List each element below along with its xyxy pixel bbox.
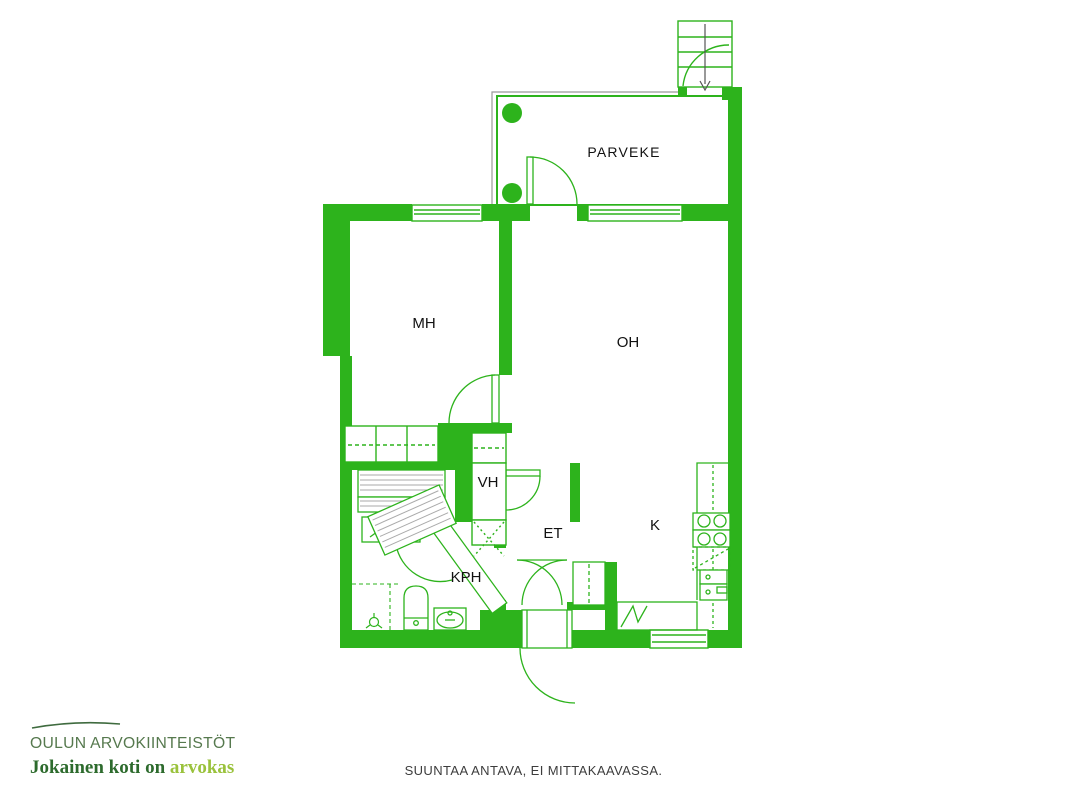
balcony-post [502,103,522,123]
kitchen-window [650,630,708,648]
logo-curve [30,719,230,729]
room-label-kph: KPH [451,569,482,586]
floor-drain-icon [366,613,382,628]
shower-area [352,584,398,630]
room-label-oh: OH [617,334,640,351]
stairs-icon [678,21,732,90]
oh-window [588,205,682,221]
stove-icon [693,513,730,547]
room-label-parveke: PARVEKE [587,144,660,160]
entrance-door [520,610,575,703]
floor-plan-drawing: PARVEKE MH OH VH ET K KPH [0,0,1067,800]
room-label-et: ET [543,525,562,542]
balcony-post [502,183,522,203]
balcony-door [527,157,577,204]
toilet-icon [404,586,428,630]
closets [472,433,506,556]
appliance-zigzag-icon [621,606,647,627]
kitchen-fixtures [617,463,730,630]
wardrobe [345,426,438,462]
room-label-vh: VH [478,474,499,491]
fridge-icon [700,570,727,600]
entrance-inner-door [517,560,567,605]
scale-disclaimer: SUUNTAA ANTAVA, EI MITTAKAAVASSA. [0,763,1067,778]
room-label-k: K [650,517,660,534]
vh-door [506,470,540,510]
sink-icon [434,608,466,630]
mh-window [412,205,482,221]
floor-plan-page: PARVEKE MH OH VH ET K KPH OULUN ARVOKIIN… [0,0,1067,800]
dishwasher-reservation-icon [693,547,730,570]
room-label-mh: MH [412,315,435,332]
company-name: OULUN ARVOKIINTEISTÖT [30,735,285,753]
et-closet [573,562,605,605]
mh-door [449,375,499,423]
